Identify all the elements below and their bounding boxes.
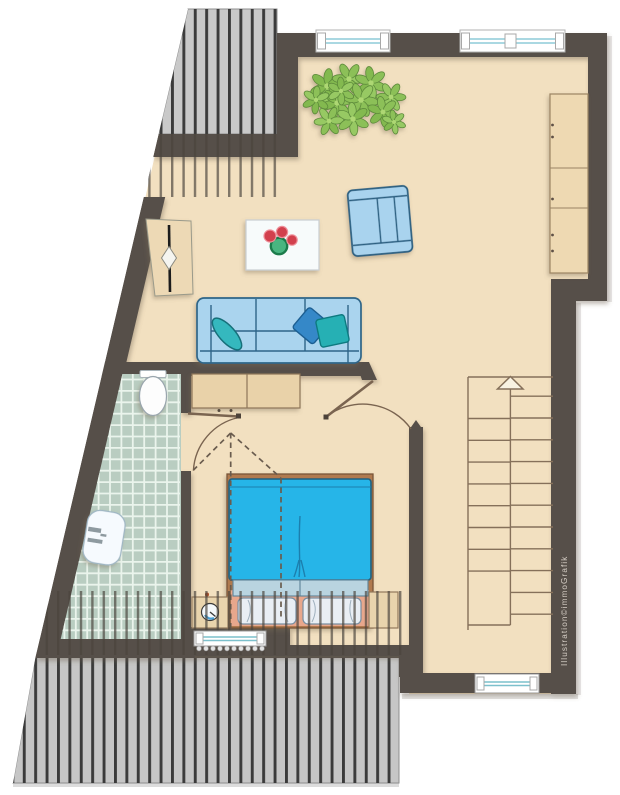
svg-text:Illustration©immoGrafik: Illustration©immoGrafik bbox=[560, 556, 569, 667]
